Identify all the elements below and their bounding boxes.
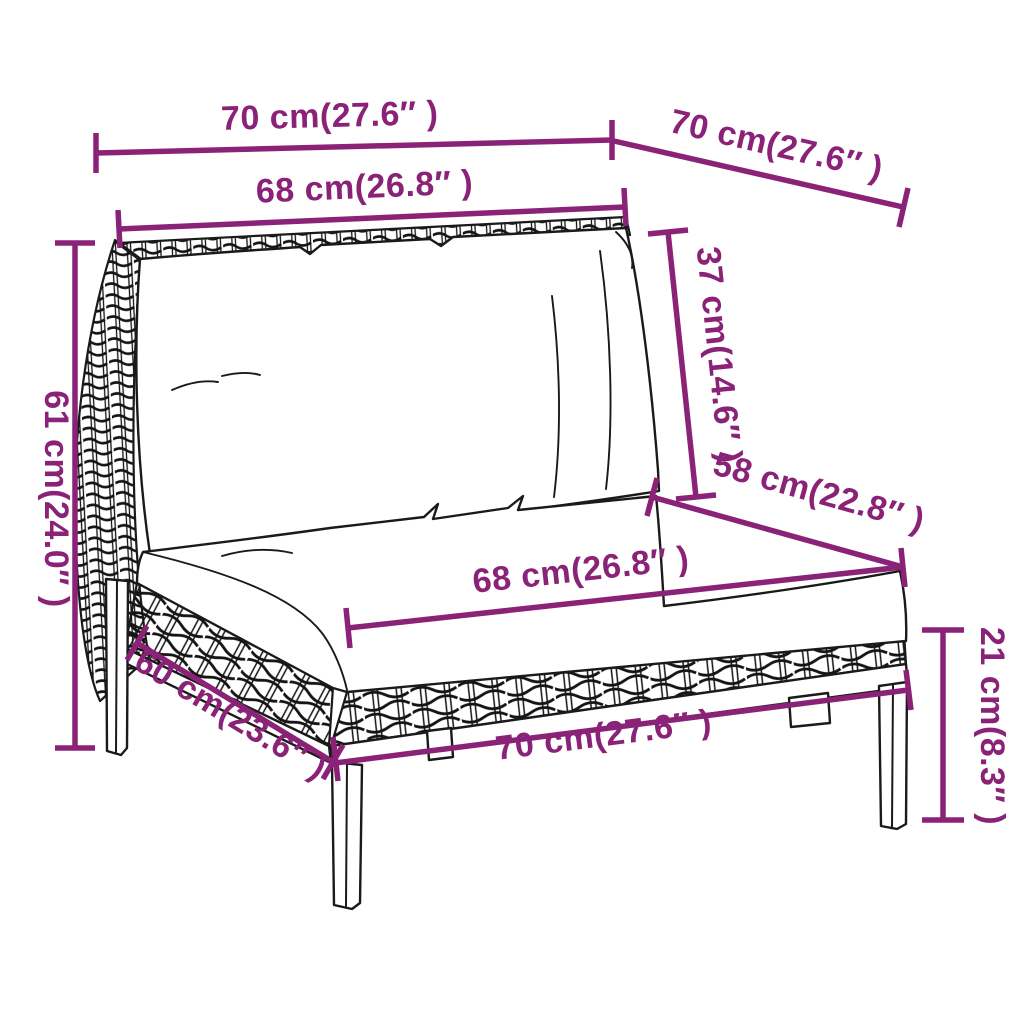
dimension-seat-depth: 58 cm(22.8″ ) bbox=[647, 445, 929, 567]
dimension-line bbox=[96, 140, 612, 153]
dimension-label: 61 cm(24.0″ ) bbox=[37, 390, 75, 607]
mount-tab-left bbox=[427, 728, 453, 760]
dimension-top-depth: 70 cm(27.6″ ) bbox=[614, 102, 908, 227]
dimension-top-width: 70 cm(27.6″ ) bbox=[96, 94, 612, 173]
dimension-diagram-svg: 70 cm(27.6″ ) 70 cm(27.6″ ) 68 cm(26.8″ … bbox=[0, 0, 1024, 1024]
dimension-leg-height: 21 cm(8.3″ ) bbox=[922, 627, 1011, 825]
dimension-tick bbox=[118, 210, 120, 248]
leg-front-center-edge bbox=[346, 764, 347, 906]
dimension-tick bbox=[676, 495, 716, 499]
leg-front-left-edge bbox=[116, 580, 117, 752]
diagram-canvas: 70 cm(27.6″ ) 70 cm(27.6″ ) 68 cm(26.8″ … bbox=[0, 0, 1024, 1024]
dimension-tick bbox=[648, 230, 688, 234]
dimension-label: 58 cm(22.8″ ) bbox=[709, 445, 929, 540]
dimension-tick bbox=[624, 188, 626, 226]
dimension-label: 21 cm(8.3″ ) bbox=[973, 627, 1011, 825]
leg-right-edge bbox=[892, 684, 893, 827]
dimension-label: 70 cm(27.6″ ) bbox=[221, 94, 439, 138]
dimension-label: 68 cm(26.8″ ) bbox=[255, 163, 474, 210]
dimension-label: 37 cm(14.6″ ) bbox=[689, 245, 750, 465]
